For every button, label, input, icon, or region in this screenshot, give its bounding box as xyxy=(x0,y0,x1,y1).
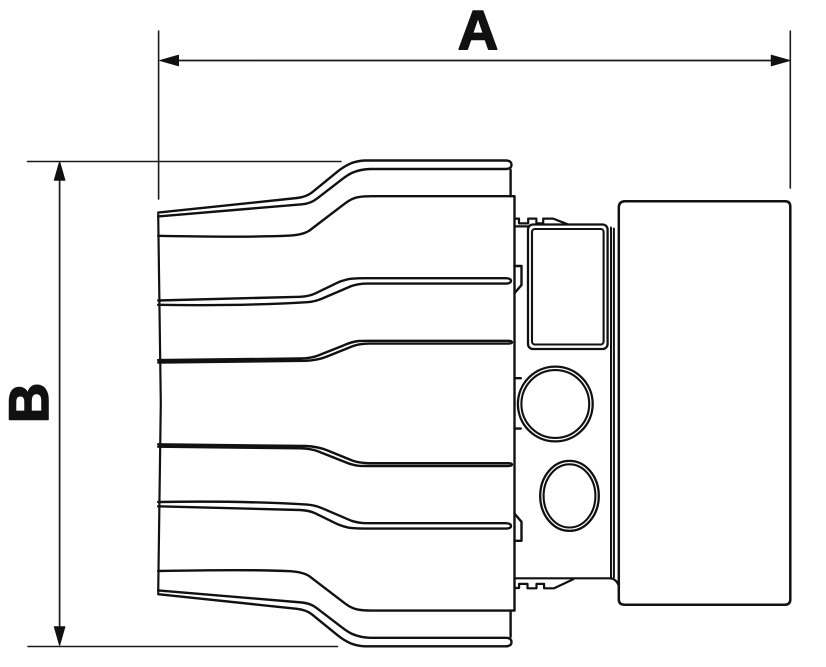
svg-text:A: A xyxy=(458,0,498,62)
svg-text:B: B xyxy=(0,383,60,423)
